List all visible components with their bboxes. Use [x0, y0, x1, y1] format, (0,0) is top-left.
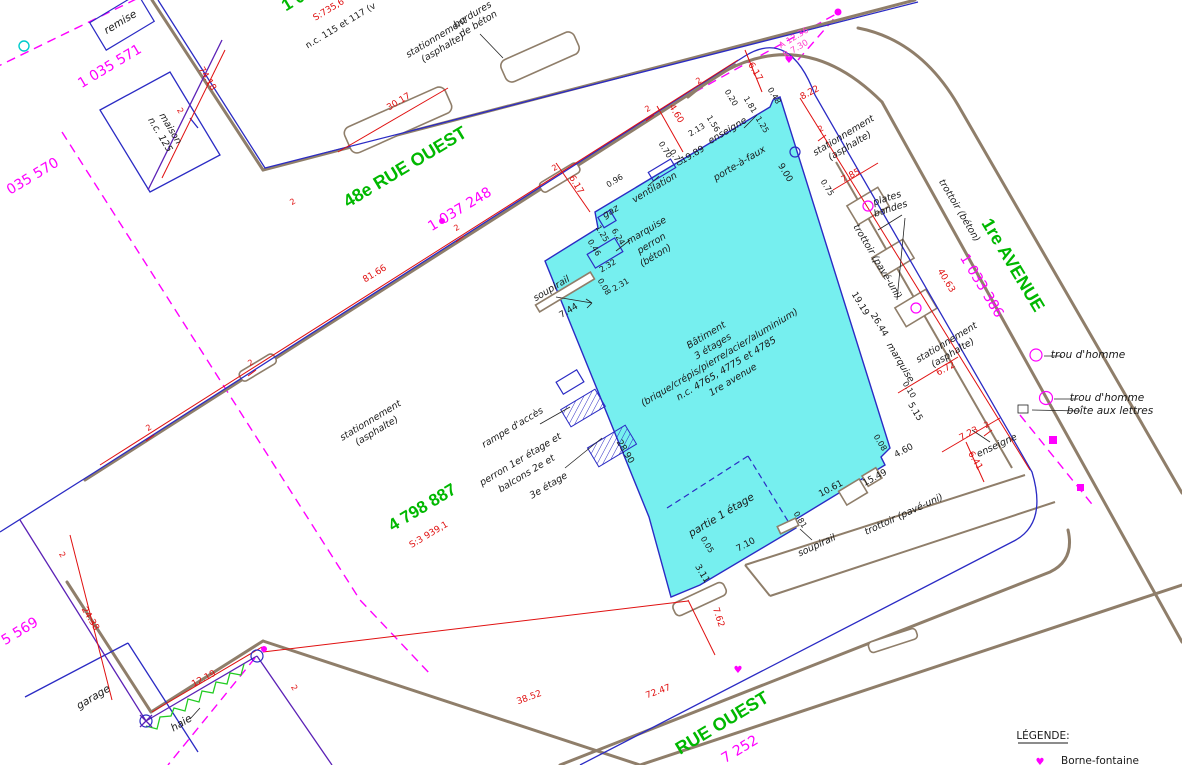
stationnement-right-top: stationnement (asphalte)	[811, 113, 883, 169]
maison-label: maison n.c. 125	[145, 109, 185, 154]
dim-72-47: 72.47	[645, 683, 673, 701]
bordures-label: bordures de béton	[452, 0, 500, 40]
balcony-hatch	[561, 389, 606, 427]
mailbox-icon	[1018, 405, 1028, 413]
dim-tick-2: 2	[57, 550, 67, 559]
hedge-line	[146, 664, 244, 729]
legend-item-borne-fontaine: Borne-fontaine	[1061, 755, 1139, 765]
dim-38-52: 38.52	[516, 689, 544, 707]
street-lot-1re-avenue: 1 033 386	[956, 251, 1006, 320]
garage-label: garage	[75, 683, 113, 712]
manhole-icon	[1030, 349, 1042, 361]
curb-island	[499, 30, 582, 84]
stationnement-main: stationnement (asphalte)	[338, 398, 410, 454]
dim-74-18: 74.18	[196, 65, 218, 92]
legend-borne-fontaine-icon: ♥	[1036, 757, 1045, 765]
dim-0-20: 0.20	[723, 88, 740, 108]
parcel-number-570: 035 570	[4, 155, 62, 199]
dim-7-23: 7.23	[958, 425, 980, 443]
dim-0-75: 0.75	[819, 178, 836, 198]
trou-dhomme-2-label: trou d'homme	[1070, 392, 1144, 404]
dim-5-15: 5.15	[905, 401, 924, 423]
plan-svg: ♥ ♥ ♥ 48e RUE OUEST 1 037 248 1re AVENUE…	[0, 0, 1182, 765]
boundary-point-icon	[835, 9, 842, 16]
survey-marker-icon	[19, 41, 29, 51]
marker-cross-icon	[140, 715, 152, 727]
curb-bump	[867, 628, 918, 654]
dim-0-96: 0.96	[605, 172, 625, 189]
dim-2-13: 2.13	[687, 121, 707, 138]
dim-tick-2: 2	[289, 683, 299, 692]
haie-label: haie	[169, 712, 194, 734]
enseigne-right-label: enseigne	[975, 432, 1019, 460]
dim-19-19: 19.19	[849, 290, 871, 317]
dim-26-44: 26.44	[868, 311, 890, 338]
street-lot-48e: 1 037 248	[425, 184, 494, 234]
marquise-right-label: marquise	[884, 341, 916, 385]
dim-tick-2: 2	[643, 104, 652, 114]
sign-post-icon	[1049, 436, 1057, 444]
dim-40-63: 40.63	[935, 267, 957, 294]
parcel-number-571: 1 035 571	[75, 41, 144, 91]
dim-tick-2: 2	[175, 106, 185, 115]
borne-fontaine-icon: ♥	[734, 665, 743, 676]
dim-6-17-b: 6.17	[745, 61, 764, 83]
dim-7-62: 7.62	[710, 606, 726, 628]
stair-box	[556, 370, 584, 394]
trou-dhomme-label: trou d'homme	[1051, 349, 1125, 361]
legend-title: LÉGENDE:	[1016, 729, 1069, 742]
dim-6-17-a: 6.17	[566, 174, 585, 196]
dim-4-60-top: 4.60	[666, 103, 685, 126]
survey-plan: ♥ ♥ ♥ 48e RUE OUEST 1 037 248 1re AVENUE…	[0, 0, 1182, 765]
dim-1-81: 1.81	[742, 95, 759, 115]
soupirail-bottom-label: soupirail	[796, 532, 838, 559]
dim-tick-2: 2	[144, 423, 153, 433]
dim-tick-2: 2	[452, 223, 461, 233]
parcel-area-main: S:3 939,1	[408, 520, 450, 551]
boite-aux-lettres-label: boîte aux lettres	[1067, 405, 1154, 417]
sign-post-icon	[1077, 484, 1084, 491]
parcel-number-top: 1 03	[278, 0, 316, 15]
trottoir-pave-bottom-label: trottoir (pavé-uni)	[863, 492, 945, 538]
symbols: ♥ ♥ ♥	[19, 9, 1084, 765]
dim-tick-2: 2	[816, 124, 825, 134]
dim-4-60-right: 4.60	[893, 442, 916, 460]
dim-81-66: 81.66	[361, 263, 388, 285]
boundary-point-icon	[261, 646, 267, 652]
dim-tick-2: 2	[288, 197, 297, 207]
dimension-lines	[70, 50, 1030, 712]
parcel-number-569: 5 569	[0, 614, 41, 648]
dim-7-85: 7.85	[840, 167, 862, 185]
